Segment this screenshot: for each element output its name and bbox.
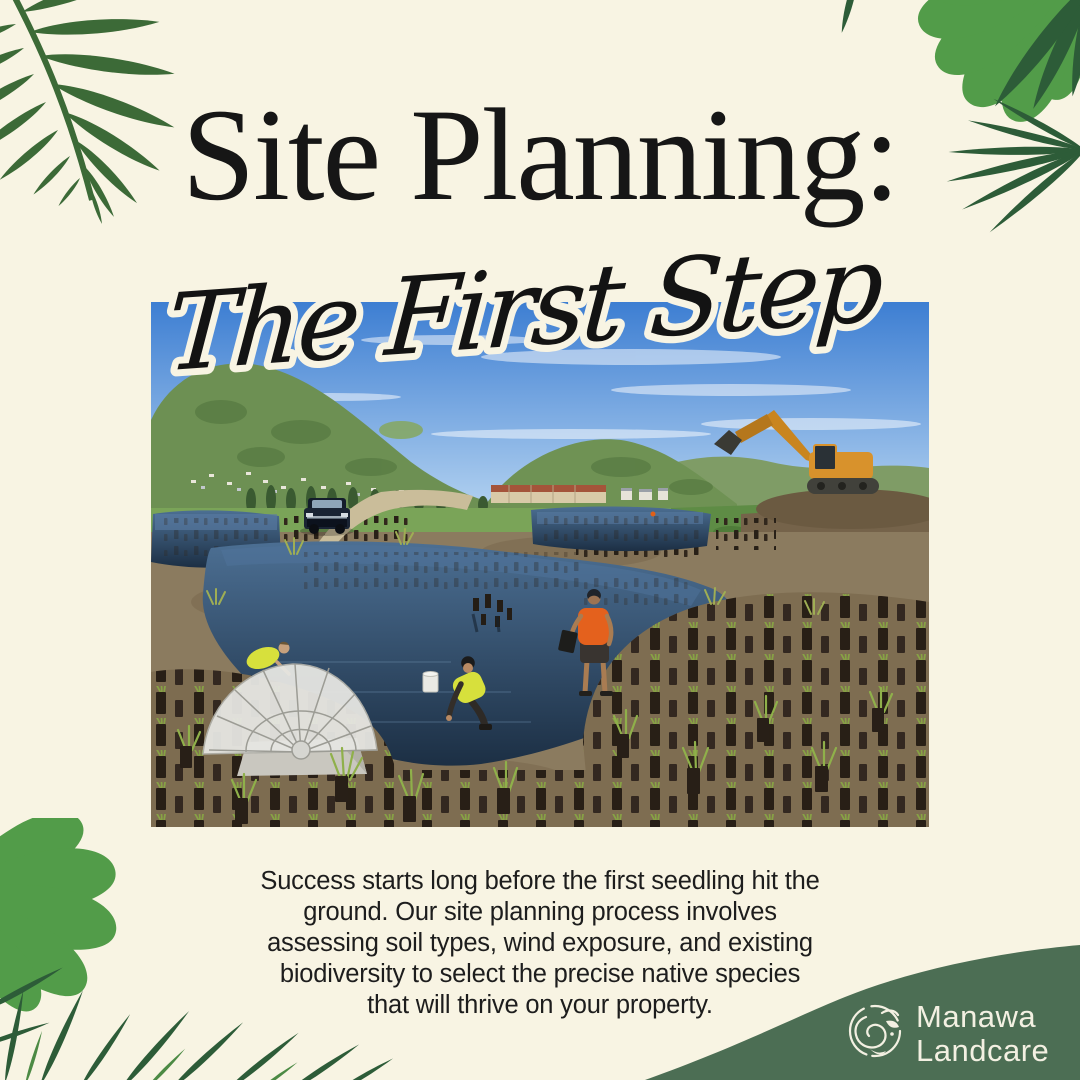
brand-name-line1: Manawa <box>916 999 1036 1034</box>
body-line-2: ground. Our site planning process involv… <box>0 897 1080 928</box>
hill-light-patch <box>379 421 423 439</box>
subtitle-text: The First Step <box>163 222 886 396</box>
body-line-1: Success starts long before the first see… <box>0 866 1080 897</box>
bucket <box>423 672 438 693</box>
right-pond <box>531 507 711 552</box>
page-subtitle-script: The First Step <box>150 194 930 414</box>
brand-name-line2: Landcare <box>916 1033 1049 1068</box>
distant-worker <box>651 512 656 517</box>
brand-wave: Manawa Landcare <box>630 935 1080 1080</box>
stub-rows-right <box>716 518 776 550</box>
pickup-truck <box>300 498 354 536</box>
